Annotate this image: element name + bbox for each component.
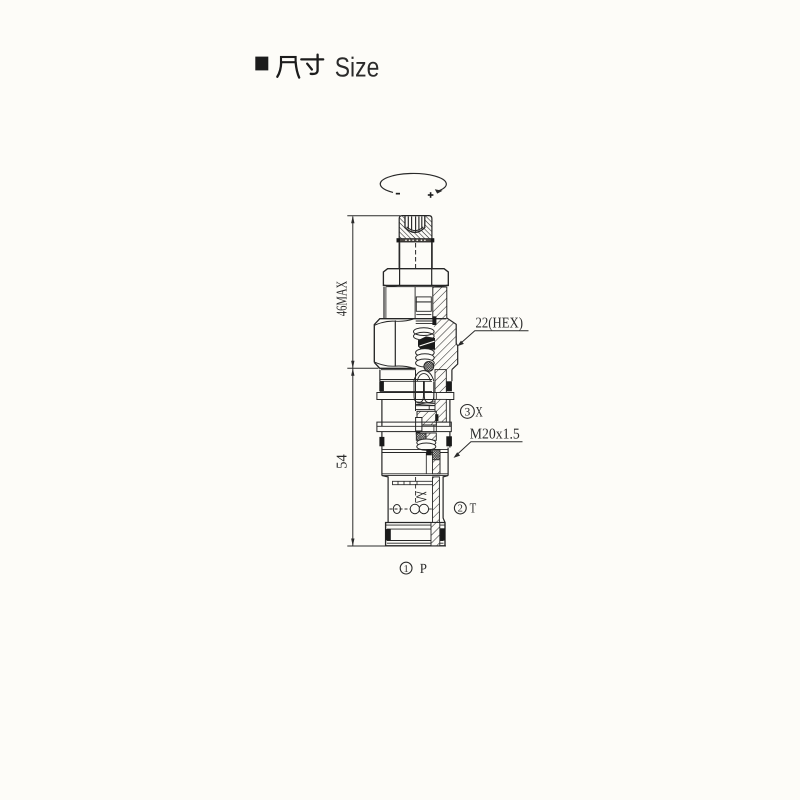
svg-text:3: 3	[465, 406, 471, 418]
svg-text:22(HEX): 22(HEX)	[476, 316, 524, 332]
svg-text:M20x1.5: M20x1.5	[470, 426, 520, 442]
svg-text:2: 2	[458, 504, 463, 515]
svg-text:Size: Size	[335, 51, 380, 82]
svg-text:P: P	[420, 562, 427, 577]
svg-text:T: T	[470, 502, 477, 517]
svg-text:46MAX: 46MAX	[335, 281, 351, 317]
svg-text:X: X	[475, 404, 483, 420]
svg-text:1: 1	[403, 564, 408, 575]
svg-text:54: 54	[335, 454, 351, 469]
